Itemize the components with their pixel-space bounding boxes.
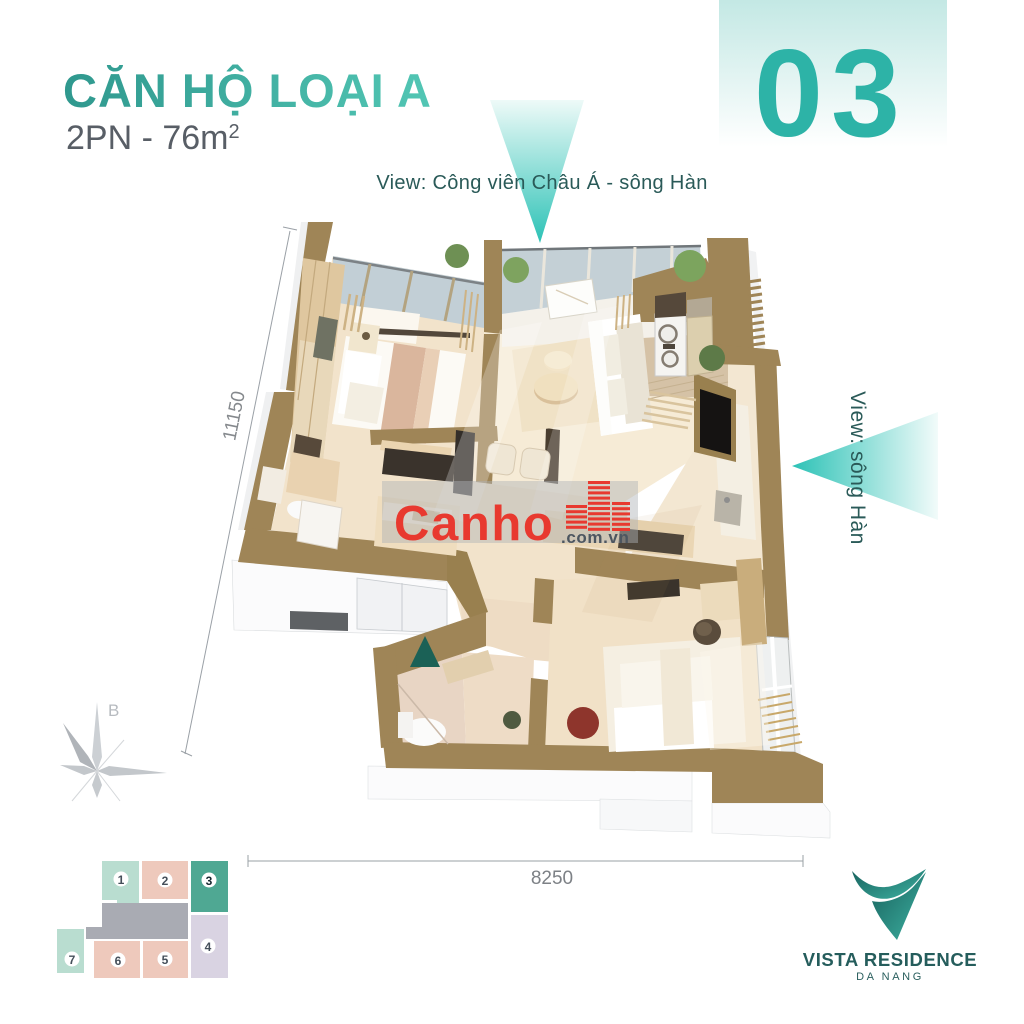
svg-text:6: 6 bbox=[115, 954, 122, 968]
svg-text:8250: 8250 bbox=[531, 868, 573, 889]
svg-text:.com.vn: .com.vn bbox=[561, 528, 629, 547]
svg-text:View: Công viên Châu Á - sông: View: Công viên Châu Á - sông Hàn bbox=[376, 171, 707, 194]
svg-text:1: 1 bbox=[118, 873, 125, 887]
svg-text:2PN - 76m2: 2PN - 76m2 bbox=[66, 119, 240, 157]
svg-text:7: 7 bbox=[69, 953, 76, 967]
svg-text:2: 2 bbox=[162, 874, 169, 888]
svg-text:VISTA RESIDENCE: VISTA RESIDENCE bbox=[803, 949, 978, 970]
svg-text:DA NANG: DA NANG bbox=[856, 971, 924, 983]
svg-text:View: sông Hàn: View: sông Hàn bbox=[846, 391, 869, 545]
svg-text:3: 3 bbox=[206, 874, 213, 888]
svg-text:CĂN HỘ LOẠI A: CĂN HỘ LOẠI A bbox=[63, 64, 432, 117]
svg-text:11150: 11150 bbox=[219, 389, 250, 442]
svg-text:4: 4 bbox=[205, 940, 212, 954]
svg-text:5: 5 bbox=[162, 953, 169, 967]
svg-text:03: 03 bbox=[754, 25, 908, 163]
svg-text:B: B bbox=[108, 701, 119, 720]
svg-text:Canho: Canho bbox=[394, 497, 554, 551]
